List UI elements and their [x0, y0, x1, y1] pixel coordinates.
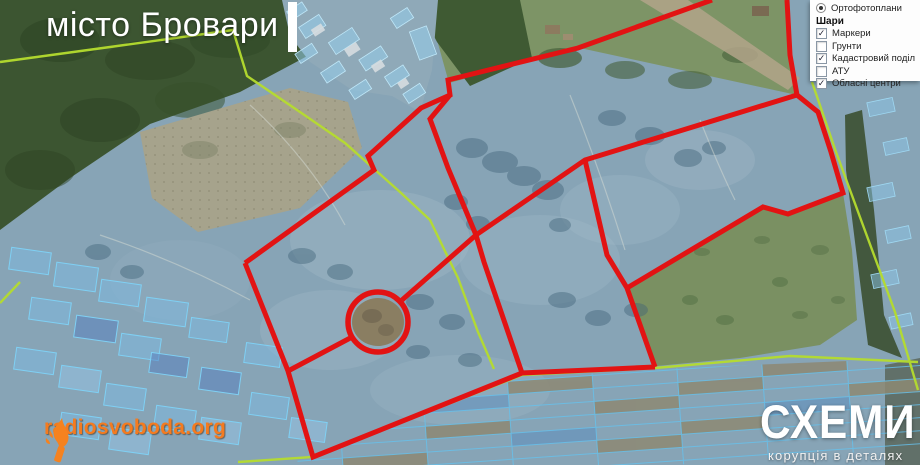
title-cursor-bar — [288, 2, 297, 52]
layer-item-markers[interactable]: ✓ Маркери — [816, 28, 920, 41]
layer-label: Кадастровий поділ — [832, 53, 915, 64]
basemap-option[interactable]: Ортофотоплани — [816, 2, 920, 15]
basemap-option-label: Ортофотоплани — [831, 3, 902, 14]
layer-label: Грунти — [832, 41, 861, 52]
checkbox-icon[interactable]: ✓ — [816, 53, 827, 64]
layer-label: АТУ — [832, 66, 849, 77]
torch-icon — [42, 416, 78, 464]
layers-panel: Ортофотоплани Шари ✓ Маркери Грунти ✓ Ка… — [810, 0, 920, 81]
radiosvoboda-watermark: radiosvoboda.org — [42, 416, 226, 440]
layers-section-label: Шари — [816, 15, 920, 28]
layer-label: Маркери — [832, 28, 871, 39]
checkbox-icon[interactable] — [816, 66, 827, 77]
layer-item-oblast-centers[interactable]: ✓ Обласні центри — [816, 78, 920, 91]
schemes-logo-title: СХЕМИ — [760, 398, 916, 445]
layer-item-soils[interactable]: Грунти — [816, 40, 920, 53]
checkbox-icon[interactable]: ✓ — [816, 78, 827, 89]
schemes-logo: СХЕМИ корупція в деталях — [760, 398, 920, 463]
layer-item-atu[interactable]: АТУ — [816, 65, 920, 78]
checkbox-icon[interactable] — [816, 41, 827, 52]
radio-icon[interactable] — [816, 3, 826, 13]
map-canvas[interactable]: місто Бровари Ортофотоплани Шари ✓ Марке… — [0, 0, 920, 465]
knoll — [352, 298, 404, 346]
page-title: місто Бровари — [46, 6, 279, 45]
schemes-logo-tagline: корупція в деталях — [768, 448, 920, 463]
checkbox-icon[interactable]: ✓ — [816, 28, 827, 39]
layer-item-cadastre[interactable]: ✓ Кадастровий поділ — [816, 53, 920, 66]
layer-label: Обласні центри — [832, 78, 901, 89]
